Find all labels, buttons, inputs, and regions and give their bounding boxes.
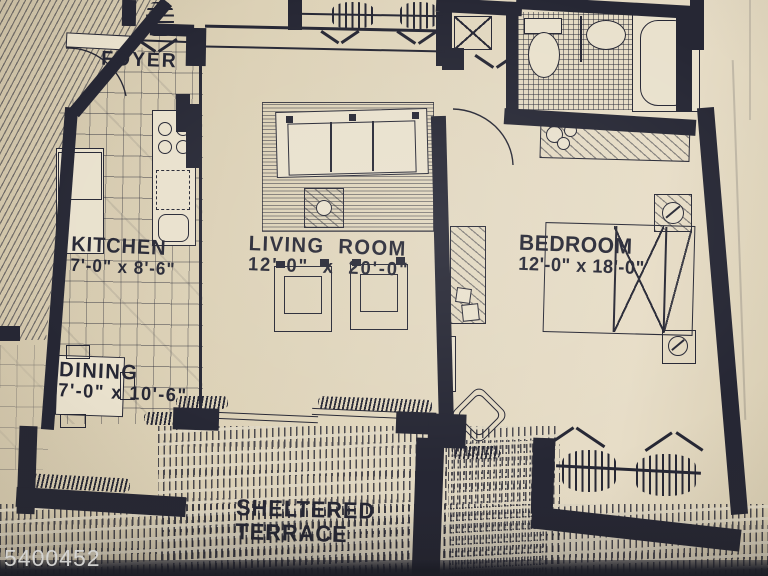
stove-burner [158,122,172,136]
bathroom-door-chevron [476,54,514,76]
wall-fin-left [0,326,20,341]
bedroom-dims: 12'-0" x 18'-0" [518,255,645,279]
terrace-column [412,438,445,576]
foyer-label: FOYER [101,49,178,72]
photo-bottom-edge [0,560,768,576]
living-room-label: LIVING ROOM 12'-0" x 20'-0" [248,233,411,280]
wall-top-left [122,0,136,26]
armchair-seat [284,276,322,314]
sofa-cushion-divider [372,121,374,171]
bathroom-partition [580,16,582,62]
hall-wall-chunk [442,48,464,70]
bedroom-closet-hangers [562,450,616,492]
dresser-decor-circle [557,137,570,150]
kitchen-east-wall-line [199,55,202,413]
bedroom-door-arc [452,108,514,166]
terrace-line2: TERRACE [235,520,375,548]
dining-label: DINING 7'-0" x 10'-6" [58,359,189,406]
sofa-cushion-divider [330,122,332,172]
bedroom-closet-hangers [636,454,696,496]
floor-plan-photo: FOYER KITCHEN 7'-0" x 8'-6" LIVING ROOM … [0,0,768,576]
bedroom-closet-wall-west [531,438,556,515]
sofa-arm-post [286,116,293,123]
desk-decor [461,303,480,322]
bedroom-closet-chevron [546,414,604,448]
paper-crease [749,0,751,120]
living-room-dims: 12'-0" x 20'-0" [248,255,410,280]
terrace-label: SHELTERED TERRACE [235,496,375,547]
dining-chair [60,414,86,428]
foyer-wall-east [186,28,207,66]
coffee-table-decor [316,200,332,216]
bathroom-sink [586,20,626,50]
hall-closet-bifold-chevron [322,30,358,50]
dishwasher [156,170,190,210]
sofa-seat [287,120,416,175]
stove-burner [158,140,172,154]
hall-closet-bifold-chevron [398,30,436,50]
desk-decor [455,287,472,304]
bedroom-label: BEDROOM 12'-0" x 18'-0" [518,232,646,279]
watermark-number: 5400452 [4,545,101,572]
wall-top-right [690,0,704,50]
toilet-bowl [528,32,560,78]
living-wall-south-left [173,407,220,431]
sofa-arm-post [412,112,419,119]
shaft-box [454,16,492,50]
sliding-door-track [214,412,318,424]
bedroom-closet-chevron [646,418,702,452]
sofa-arm-post [349,114,356,121]
kitchen-label: KITCHEN 7'-0" x 8'-6" [70,234,177,279]
dining-chair [66,345,90,359]
bed-pillow-diagonal [664,228,692,332]
